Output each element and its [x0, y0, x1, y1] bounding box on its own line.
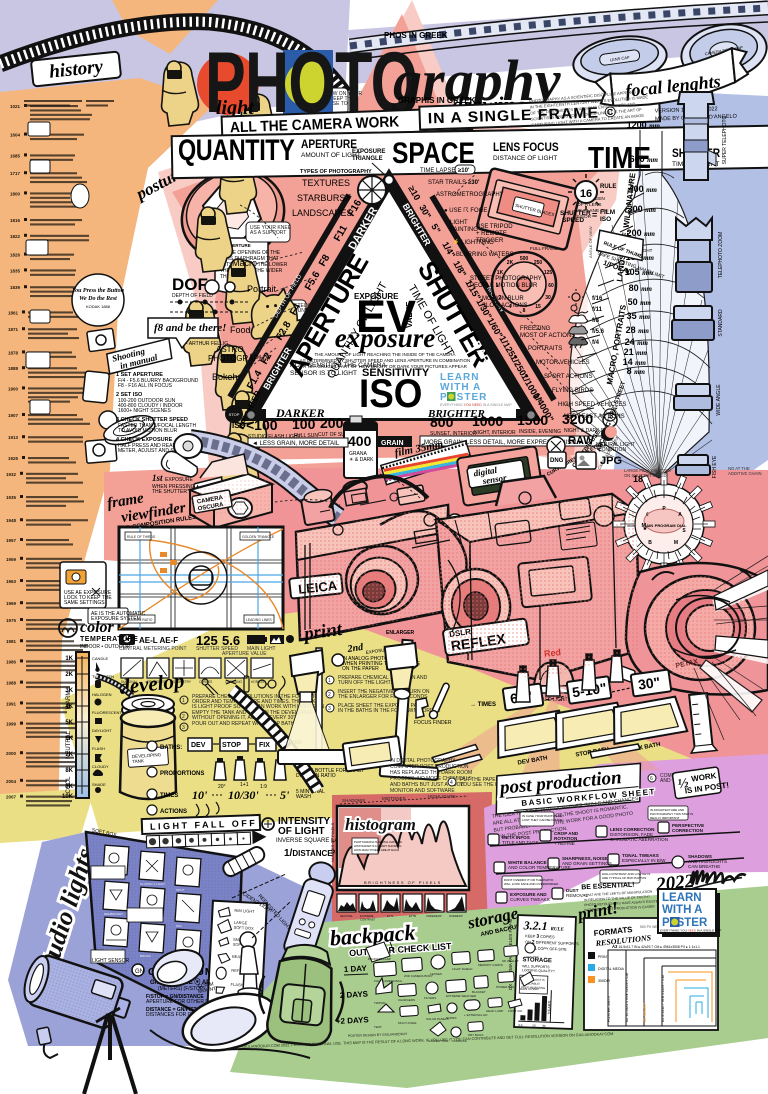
svg-text:STOP: STOP — [229, 412, 240, 417]
svg-text:≥10': ≥10' — [458, 168, 470, 174]
svg-text:HOW MANY PIXELS ARE AT EACH: HOW MANY PIXELS ARE AT EACH — [354, 848, 399, 852]
svg-text:SPLIT: SPLIT — [176, 888, 185, 892]
svg-text:STARBURST: STARBURST — [297, 193, 351, 203]
svg-text:FILTERS: FILTERS — [424, 996, 436, 1000]
svg-text:TEXTURES: TEXTURES — [302, 178, 350, 188]
svg-text:3-5: 3-5 — [518, 1023, 523, 1027]
svg-text:☾: ☾ — [646, 512, 650, 518]
svg-text:LIGHT: LIGHT — [450, 220, 468, 226]
svg-text:1907: 1907 — [8, 413, 19, 418]
svg-text:A3 420x297: A3 420x297 — [643, 1003, 647, 1022]
svg-text:1839: 1839 — [10, 285, 21, 290]
svg-text:FREEZING: FREEZING — [520, 326, 551, 332]
svg-text:RIM: RIM — [176, 924, 182, 928]
svg-text:CHROMATIC ABERRATION: CHROMATIC ABERRATION — [610, 837, 668, 842]
svg-text:INSIDE, EVENING: INSIDE, EVENING — [519, 429, 561, 435]
svg-text:1st: 1st — [152, 473, 163, 483]
svg-text:TENT: TENT — [374, 1025, 382, 1029]
svg-text:1800: 1800 — [10, 191, 21, 196]
svg-text:1988: 1988 — [6, 681, 17, 686]
svg-text:1: 1 — [328, 678, 331, 684]
svg-text:1888: 1888 — [8, 366, 19, 371]
svg-text:NEUTRAL: NEUTRAL — [66, 730, 72, 759]
svg-text:P STER: P STER — [662, 917, 708, 929]
svg-text:MULTI KNIFE: MULTI KNIFE — [398, 1021, 416, 1025]
svg-text:exposure: exposure — [335, 323, 436, 353]
svg-text:1200 mm: 1200 mm — [627, 120, 661, 130]
svg-text:35 mm: 35 mm — [627, 311, 651, 321]
svg-text:ARE TYPICAL OF B/W PHOTOS: ARE TYPICAL OF B/W PHOTOS — [602, 876, 646, 880]
svg-text:LIGHT SENSOR: LIGHT SENSOR — [92, 958, 130, 964]
svg-text:USE TRIPOD: USE TRIPOD — [476, 224, 513, 230]
svg-text:A3 16.5x11.7 IN ▸ 42x29.7 CM ▸: A3 16.5x11.7 IN ▸ 42x29.7 CM ▸ 4961x3508… — [612, 944, 700, 949]
svg-text:ESPECIALLY IN B/W: ESPECIALLY IN B/W — [622, 858, 666, 863]
svg-text:RAIN COVER: RAIN COVER — [520, 987, 540, 991]
svg-text:500: 500 — [520, 256, 529, 262]
svg-text:TIMES: TIMES — [160, 793, 178, 799]
svg-text:COOL: COOL — [66, 776, 72, 794]
svg-text:ACTIONS: ACTIONS — [160, 809, 187, 815]
svg-text:1991: 1991 — [6, 701, 17, 706]
svg-text:PHOTOGRAPHY: PHOTOGRAPHY — [208, 354, 271, 363]
svg-text:24 mm: 24 mm — [625, 337, 649, 347]
svg-text:HEAD LAMP: HEAD LAMP — [486, 1009, 503, 1013]
svg-text:COMPASS: COMPASS — [452, 1039, 467, 1043]
svg-text:TELEPHOTO ZOOM: TELEPHOTO ZOOM — [718, 232, 724, 279]
svg-text:SHUTTER: SHUTTER — [560, 210, 591, 217]
svg-text:DNG: DNG — [550, 458, 564, 464]
svg-text:WIDE ANGLE: WIDE ANGLE — [716, 384, 722, 416]
svg-text:15: 15 — [535, 304, 541, 310]
svg-text:10': 10' — [192, 788, 208, 802]
svg-text:ADDITIVE CHAIN: ADDITIVE CHAIN — [728, 471, 762, 476]
svg-text:1948: 1948 — [6, 518, 17, 523]
svg-text:Portrait: Portrait — [247, 284, 277, 294]
svg-text:IN THE BATHS IN THE FOLLOWING: IN THE BATHS IN THE FOLLOWING ORDER — [338, 708, 441, 714]
svg-text:SHADE: SHADE — [92, 782, 106, 787]
svg-text:BATHS:: BATHS: — [160, 745, 182, 751]
svg-text:GN: GN — [135, 969, 144, 975]
svg-text:1959: 1959 — [6, 557, 17, 562]
svg-text:FIX: FIX — [259, 742, 270, 749]
svg-text:3: 3 — [328, 706, 331, 712]
svg-text:BLURRING WATERS: BLURRING WATERS — [456, 252, 514, 258]
svg-text:LIGHT SHIELD: LIGHT SHIELD — [452, 967, 473, 971]
svg-text:☀ & DARK: ☀ & DARK — [349, 457, 374, 463]
svg-text:TRIANGLE: TRIANGLE — [352, 156, 383, 162]
svg-text:1935: 1935 — [6, 495, 17, 500]
svg-text:⚡ LIGHTNING: ⚡ LIGHTNING — [452, 238, 494, 246]
svg-text:THE SHUTTER: THE SHUTTER — [152, 489, 187, 495]
svg-text:THE ENLARGER FOR FEW SECONDS: THE ENLARGER FOR FEW SECONDS — [338, 694, 428, 700]
svg-text:28 mm: 28 mm — [626, 325, 650, 335]
svg-text:WARM: WARM — [66, 691, 72, 710]
svg-text:BLANKET: BLANKET — [472, 990, 486, 994]
svg-text:FISH EYE: FISH EYE — [712, 455, 718, 478]
svg-text:3: 3 — [182, 725, 185, 731]
svg-text:CORRECTION: CORRECTION — [672, 828, 704, 833]
svg-text:2 DAYS: 2 DAYS — [340, 990, 369, 1000]
svg-text:MOST OF ACTIONS: MOST OF ACTIONS — [520, 333, 575, 339]
svg-text:HIGH SPEED VEHICLES: HIGH SPEED VEHICLES — [558, 402, 626, 408]
svg-text:1822: 1822 — [10, 234, 21, 239]
svg-text:CAN BREATHE: CAN BREATHE — [688, 864, 720, 869]
svg-text:1913: 1913 — [8, 435, 19, 440]
svg-text:UNDEREXP.: UNDEREXP. — [426, 914, 442, 918]
svg-text:+ EXTERNAL HD: + EXTERNAL HD — [464, 1013, 488, 1017]
svg-text:CURVES TWEAKS: CURVES TWEAKS — [510, 897, 550, 902]
svg-text:f/5.6: f/5.6 — [592, 329, 605, 335]
svg-text:1975: 1975 — [6, 618, 17, 623]
svg-text:2K: 2K — [507, 260, 514, 266]
svg-text:SPEED: SPEED — [562, 217, 584, 224]
svg-text:REMBRANDT: REMBRANDT — [104, 912, 123, 916]
svg-text:SLOW ACTIONS: SLOW ACTIONS — [482, 303, 528, 309]
svg-text:60: 60 — [548, 283, 554, 289]
svg-text:CLOUDY: CLOUDY — [92, 764, 109, 769]
svg-text:EXPOSURE: EXPOSURE — [165, 477, 193, 483]
svg-text:A: A — [678, 512, 682, 518]
svg-text:1981: 1981 — [6, 639, 17, 644]
svg-text:ON SHUTTER SPEED: ON SHUTTER SPEED — [624, 473, 667, 478]
svg-text:THE AMOUNT OF LIGHT REACHING T: THE AMOUNT OF LIGHT REACHING THE INSIDE … — [315, 352, 456, 357]
svg-text:≥30': ≥30' — [468, 180, 480, 186]
svg-text:INDOOR • OUTDOOR: INDOOR • OUTDOOR — [80, 644, 130, 650]
svg-text:1999: 1999 — [6, 722, 17, 727]
svg-text:200: 200 — [320, 415, 344, 431]
svg-text:1871: 1871 — [8, 327, 19, 332]
svg-text:DEV: DEV — [191, 742, 206, 749]
svg-text:LANDSCAPES: LANDSCAPES — [292, 208, 353, 218]
svg-text:1: 1 — [182, 698, 185, 704]
svg-text:1604: 1604 — [10, 133, 21, 138]
svg-text:+2 DAYS: +2 DAYS — [336, 1015, 370, 1026]
svg-text:1021: 1021 — [10, 104, 21, 109]
svg-text:PEOPLE MOTION BLUR: PEOPLE MOTION BLUR — [470, 283, 538, 289]
svg-text:A2 16.5x23.4 IN ▸ 42x59.4 CM: A2 16.5x23.4 IN ▸ 42x59.4 CM — [625, 973, 629, 1022]
svg-text:STREET PHOTOGRAPHY: STREET PHOTOGRAPHY — [470, 276, 542, 282]
svg-text:ON THE PAPER: ON THE PAPER — [342, 666, 379, 672]
svg-text:We Do the Rest: We Do the Rest — [79, 296, 117, 302]
svg-text:PAINTING: PAINTING — [450, 227, 478, 233]
svg-text:LOST THEY CAN BE FOUND: LOST THEY CAN BE FOUND — [522, 818, 563, 822]
svg-text:2007: 2007 — [6, 795, 17, 800]
svg-text:SENSOR IS TO LIGHT: SENSOR IS TO LIGHT — [290, 370, 357, 377]
svg-text:LENS PEN: LENS PEN — [524, 955, 539, 959]
svg-text:RULE OF THIRDS: RULE OF THIRDS — [127, 535, 156, 539]
svg-text:F8 - F16 ALL IN FOCUS: F8 - F16 ALL IN FOCUS — [118, 383, 173, 389]
svg-text:1957: 1957 — [6, 538, 17, 543]
svg-text:TRIPOD: TRIPOD — [374, 1001, 386, 1005]
svg-text:BROAD: BROAD — [140, 954, 152, 958]
svg-text:AS A SUPPORT: AS A SUPPORT — [250, 230, 286, 236]
svg-text:LENS FOCUS: LENS FOCUS — [493, 141, 559, 154]
svg-text:RAW: RAW — [568, 435, 594, 447]
svg-text:20°: 20° — [218, 784, 226, 790]
svg-text:Bokeh: Bokeh — [212, 372, 238, 382]
svg-text:WILL LOOK FAKE AND OVERWORKED: WILL LOOK FAKE AND OVERWORKED — [504, 882, 559, 886]
svg-text:STANDARD: STANDARD — [718, 309, 724, 337]
svg-text:SPACE: SPACE — [392, 136, 475, 170]
svg-text:SAME SETTINGS: SAME SETTINGS — [64, 600, 105, 606]
svg-text:AND GRAIN SETTINGS: AND GRAIN SETTINGS — [562, 861, 612, 866]
svg-text:WASH: WASH — [296, 794, 311, 800]
svg-text:◄ LESS GRAIN, MORE DETAIL: ◄ LESS GRAIN, MORE DETAIL — [252, 441, 340, 447]
svg-text:1900: 1900 — [8, 386, 19, 391]
svg-text:FIRST AID: FIRST AID — [508, 1009, 523, 1013]
svg-text:OVEREXP.: OVEREXP. — [449, 914, 463, 918]
svg-text:STOP: STOP — [222, 742, 241, 749]
svg-text:TANK: TANK — [132, 758, 144, 764]
svg-text:color: color — [80, 619, 115, 636]
svg-text:1K: 1K — [65, 656, 73, 662]
svg-text:250: 250 — [534, 260, 543, 266]
svg-text:CLASSIC 2 LIGHT: CLASSIC 2 LIGHT — [140, 882, 165, 886]
svg-text:5': 5' — [280, 788, 290, 802]
svg-text:● USE ☈ FOGE: ● USE ☈ FOGE — [444, 207, 487, 214]
svg-text:100: 100 — [292, 416, 316, 432]
svg-text:1826: 1826 — [10, 253, 21, 258]
svg-text:f8 and be there!: f8 and be there! — [154, 322, 226, 334]
svg-text:=: = — [592, 210, 597, 220]
svg-text:FILM: FILM — [600, 209, 615, 216]
svg-text:DIGITAL MEDIA: DIGITAL MEDIA — [598, 967, 625, 971]
svg-text:ROPES: ROPES — [446, 1016, 457, 1020]
svg-text:16: 16 — [580, 188, 592, 200]
svg-text:+ REFINE: + REFINE — [554, 841, 575, 846]
svg-text:DAYLIGHT: DAYLIGHT — [92, 728, 112, 733]
svg-text:histogram: histogram — [345, 815, 416, 834]
svg-text:SD WALLET: SD WALLET — [502, 959, 519, 963]
svg-text:TURN OFF THE LIGHTS: TURN OFF THE LIGHTS — [338, 680, 395, 686]
svg-text:ENLARGER: ENLARGER — [386, 630, 414, 636]
svg-text:LENSES: LENSES — [430, 972, 442, 976]
svg-text:DOF: DOF — [172, 275, 208, 294]
svg-text:PHOS IN GREEK: PHOS IN GREEK — [384, 31, 448, 40]
svg-text:POSTER 50x70: POSTER 50x70 — [607, 996, 611, 1022]
svg-text:ANGLE OF VIEW: ANGLE OF VIEW — [588, 226, 593, 258]
svg-text:ASTROMETROGRAPHY: ASTROMETROGRAPHY — [436, 192, 504, 198]
svg-text:Macro: Macro — [232, 258, 257, 268]
svg-text:8K: 8K — [65, 768, 73, 774]
svg-text:DEPTH OF FIELD: DEPTH OF FIELD — [172, 293, 213, 299]
svg-text:f/4: f/4 — [592, 340, 600, 346]
svg-text:Main program dial: Main program dial — [642, 523, 687, 529]
svg-text:1963: 1963 — [6, 579, 17, 584]
svg-text:NEUTRAL: NEUTRAL — [340, 914, 353, 918]
svg-text:TITLE AND TAGS: TITLE AND TAGS — [502, 840, 539, 845]
svg-text:FOCUS FINDER: FOCUS FINDER — [414, 720, 452, 726]
svg-text:10K: 10K — [62, 794, 74, 800]
svg-text:FLASH: FLASH — [92, 746, 105, 751]
svg-text:YEARS: YEARS — [547, 1000, 552, 1014]
svg-text:Food: Food — [230, 325, 251, 335]
svg-text:2: 2 — [328, 692, 331, 698]
svg-text:400: 400 — [348, 433, 372, 449]
svg-text:10: 10 — [532, 1024, 536, 1028]
svg-text:NUMBER OF PIXELS: NUMBER OF PIXELS — [330, 823, 335, 862]
svg-text:6: 6 — [650, 776, 653, 782]
svg-text:DRY BAGS: DRY BAGS — [468, 1033, 483, 1037]
svg-text:1861: 1861 — [8, 310, 19, 315]
svg-text:STAR TRAILS: STAR TRAILS — [428, 180, 466, 186]
svg-text:30: 30 — [542, 1024, 546, 1028]
svg-text:CHARGERS: CHARGERS — [398, 998, 415, 1002]
svg-text:- ARTHUR FELLIG: - ARTHUR FELLIG — [186, 341, 228, 347]
svg-text:5K: 5K — [65, 720, 73, 726]
svg-text:1925: 1925 — [8, 456, 19, 461]
svg-text:1600+ NIGHT SCENES: 1600+ NIGHT SCENES — [118, 408, 172, 414]
svg-text:TYPES OF PHOTOGRAPHY: TYPES OF PHOTOGRAPHY — [300, 169, 372, 175]
svg-text:1878: 1878 — [8, 350, 19, 355]
svg-text:NIGHT, INTERIOR: NIGHT, INTERIOR — [474, 430, 516, 436]
svg-text:EXTREME WEATHER: EXTREME WEATHER — [446, 994, 477, 998]
svg-text:1 DAY: 1 DAY — [344, 964, 368, 974]
svg-text:30": 30" — [637, 674, 661, 693]
svg-text:GOLDEN TRIANGLE: GOLDEN TRIANGLE — [242, 535, 275, 539]
svg-text:RULE: RULE — [600, 184, 616, 190]
svg-text:+ REMOTE: + REMOTE — [476, 231, 507, 237]
svg-text:MEMORY CARDS: MEMORY CARDS — [478, 963, 503, 967]
svg-text:1685: 1685 — [10, 153, 21, 158]
svg-text:ISO: ISO — [232, 421, 246, 430]
svg-text:★: ★ — [643, 526, 648, 532]
svg-text:EVERYTHING YOU NEED IN A SINGL: EVERYTHING YOU NEED IN A SINGLE MAP — [440, 403, 512, 407]
svg-text:ETTL: ETTL — [387, 914, 394, 918]
svg-text:OF LIGHT: OF LIGHT — [278, 826, 325, 837]
svg-text:TO AVOID MOTION BLUR: TO AVOID MOTION BLUR — [118, 428, 178, 434]
svg-text:PORTRAITS: PORTRAITS — [528, 346, 562, 352]
svg-text:MAIN LIGHT: MAIN LIGHT — [247, 646, 276, 652]
svg-text:→ TIMES: → TIMES — [470, 702, 496, 708]
svg-text:LEADING LINES: LEADING LINES — [246, 618, 272, 622]
svg-text:MOTION BLUR: MOTION BLUR — [482, 296, 524, 302]
svg-text:FLUORESCENT: FLUORESCENT — [92, 710, 122, 715]
svg-text:CANDLE: CANDLE — [92, 656, 109, 661]
svg-text:2ND CAMERA BODY: 2ND CAMERA BODY — [404, 974, 433, 978]
svg-text:LEARN: LEARN — [662, 892, 702, 904]
svg-text:ETTR: ETTR — [409, 914, 416, 918]
svg-text:ISO: ISO — [600, 216, 611, 223]
svg-text:1969: 1969 — [6, 601, 17, 606]
svg-text:CURVES: CURVES — [199, 680, 212, 684]
svg-text:You Press the Button: You Press the Button — [72, 288, 125, 294]
svg-text:DISTANCE OF LIGHT: DISTANCE OF LIGHT — [493, 155, 557, 162]
svg-text:80 mm: 80 mm — [629, 283, 653, 293]
svg-text:FLASH: FLASH — [230, 982, 243, 988]
svg-text:KODAK 1888: KODAK 1888 — [86, 304, 111, 309]
svg-text:2: 2 — [182, 714, 185, 720]
svg-text:POWER BANK: POWER BANK — [496, 985, 516, 989]
svg-text:M: M — [674, 540, 678, 546]
svg-text:QUANTITY: QUANTITY — [178, 133, 295, 166]
svg-text:B: B — [648, 540, 652, 546]
svg-text:POCKETS FLAP: POCKETS FLAP — [368, 957, 391, 961]
svg-text:1:9: 1:9 — [260, 784, 267, 790]
svg-text:APERTURE: APERTURE — [301, 138, 357, 151]
svg-text:10/30': 10/30' — [228, 788, 259, 802]
svg-text:1717: 1717 — [10, 171, 21, 176]
svg-text:FULL CAMERA BAG: FULL CAMERA BAG — [374, 979, 403, 983]
svg-text:2004: 2004 — [6, 779, 17, 784]
svg-text:2000: 2000 — [6, 751, 17, 756]
svg-text:125: 125 — [544, 270, 553, 276]
svg-text:REALLY IMPORTANT: REALLY IMPORTANT — [650, 816, 680, 820]
svg-text:EXPOSURE: EXPOSURE — [352, 149, 385, 155]
svg-text:PROPORTIONS: PROPORTIONS — [160, 771, 204, 777]
svg-text:HALOGEN: HALOGEN — [92, 692, 112, 697]
svg-text:WITH A: WITH A — [662, 904, 702, 916]
svg-text:1835: 1835 — [10, 268, 21, 273]
svg-text:30: 30 — [545, 295, 551, 301]
svg-text:AE-L AE-F: AE-L AE-F — [139, 636, 178, 645]
svg-text:SUPER TELEPHOTO: SUPER TELEPHOTO — [722, 116, 728, 165]
svg-text:GAFFER TAPE: GAFFER TAPE — [428, 1039, 449, 1043]
svg-text:CONTRAST: CONTRAST — [360, 918, 376, 922]
svg-text:EVERYTHING YOU NEED IN A SI: EVERYTHING YOU NEED IN A SINGLE MAP — [660, 929, 721, 933]
svg-text:8 mm: 8 mm — [627, 366, 646, 376]
svg-text:1932: 1932 — [6, 472, 17, 477]
svg-text:4: 4 — [450, 780, 453, 786]
svg-text:1816: 1816 — [10, 218, 21, 223]
svg-text:1000: 1000 — [472, 413, 503, 429]
svg-text:A4 8.3x11.7 IN ▸ 21x29.7 CM: A4 8.3x11.7 IN ▸ 21x29.7 CM — [661, 975, 665, 1022]
svg-text:1/DISTANCE²: 1/DISTANCE² — [284, 848, 336, 859]
svg-text:600 mm: 600 mm — [630, 154, 659, 164]
svg-text:1986: 1986 — [6, 659, 17, 664]
svg-text:TIME LAPSE: TIME LAPSE — [420, 168, 455, 174]
svg-text:TEMPERATURE: TEMPERATURE — [80, 636, 138, 643]
svg-text:800: 800 — [430, 414, 454, 430]
svg-text:50 mm: 50 mm — [628, 297, 652, 307]
svg-text:21 mm: 21 mm — [624, 347, 648, 357]
svg-text:2K: 2K — [65, 672, 73, 678]
svg-text:f/11: f/11 — [592, 307, 603, 313]
svg-text:BRIGHTNESS OF PIXELS: BRIGHTNESS OF PIXELS — [364, 880, 442, 885]
svg-text:SPORT ACTIONS: SPORT ACTIONS — [544, 374, 592, 380]
svg-text:SOFT BOX: SOFT BOX — [233, 925, 254, 931]
